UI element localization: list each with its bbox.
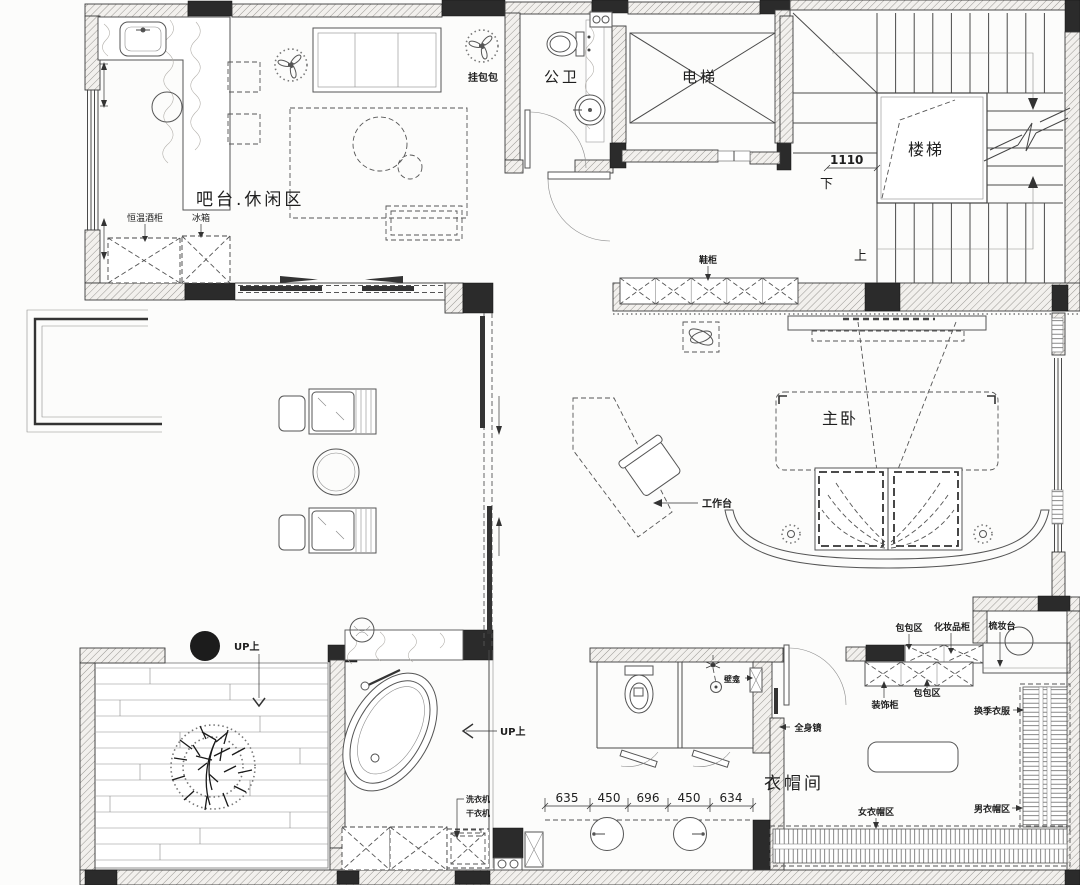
armchair: [279, 389, 376, 434]
room-title-bar: 吧台.休闲区: [196, 190, 304, 210]
room-title-stairs: 楼梯: [908, 140, 944, 159]
armchair: [279, 508, 376, 553]
label-decor-cabinet: 装饰柜: [870, 699, 898, 711]
label-women-area: 女衣帽区: [858, 806, 894, 818]
basin: [674, 818, 707, 851]
bath-counter: [345, 630, 463, 660]
floor-plan: 吧台.休闲区 恒温酒柜 冰箱 挂包包 公卫 电梯: [0, 0, 1080, 885]
basin: [591, 818, 624, 851]
sofa: [313, 28, 441, 92]
room-title-elevator: 电梯: [682, 68, 718, 86]
label-full-mirror: 全身镜: [793, 722, 821, 734]
label-bag-area-mid: 包包区: [912, 687, 940, 699]
label-wine-cabinet: 恒温酒柜: [127, 212, 163, 224]
toilet: [547, 32, 591, 56]
label-fridge: 冰箱: [192, 212, 210, 224]
room-title-master: 主卧: [822, 409, 858, 428]
womens-wardrobe: [770, 826, 1070, 866]
top-niche-unit: [590, 12, 612, 27]
label-workdesk: 工作台: [702, 497, 732, 510]
column: [190, 631, 220, 661]
label-washer: 洗衣机: [466, 794, 490, 804]
floor-plan-drawing: 吧台.休闲区 恒温酒柜 冰箱 挂包包 公卫 电梯: [0, 0, 1080, 885]
dim-696: 696: [637, 791, 660, 805]
island-cabinet: [868, 742, 958, 772]
label-niche: 壁龛: [724, 674, 741, 684]
decor-bag-cabinet: [865, 662, 973, 686]
dim-450a: 450: [598, 791, 621, 805]
terrace-deck: [95, 663, 328, 868]
label-seasonal: 换季衣服: [974, 705, 1011, 717]
dim-450b: 450: [678, 791, 701, 805]
label-up-bath: UP上: [500, 725, 525, 738]
mens-wardrobe: [1020, 684, 1070, 830]
dim-635: 635: [556, 791, 579, 805]
room-title-wc: 公卫: [544, 68, 580, 86]
room-title-cloak: 衣帽间: [764, 774, 824, 794]
label-bag-area-top: 包包区: [894, 622, 922, 634]
label-shoe-cabinet: 鞋柜: [699, 254, 717, 266]
label-up-terrace: UP上: [234, 640, 259, 653]
label-dressing-table: 梳妆台: [987, 620, 1015, 632]
toilet: [625, 666, 653, 713]
bed: [815, 468, 962, 550]
label-hang-bags: 挂包包: [468, 71, 498, 84]
dim-634: 634: [720, 791, 743, 805]
label-men-area: 男衣帽区: [974, 803, 1010, 815]
stair-dim-1110: 1110: [830, 153, 863, 167]
label-dryer: 干衣机: [466, 808, 490, 818]
stair-up-label: 上: [854, 249, 867, 264]
bag-cosmetics-cabinet: [905, 645, 983, 663]
stair-down-label: 下: [820, 177, 833, 192]
label-cosmetics: 化妆品柜: [934, 621, 970, 633]
